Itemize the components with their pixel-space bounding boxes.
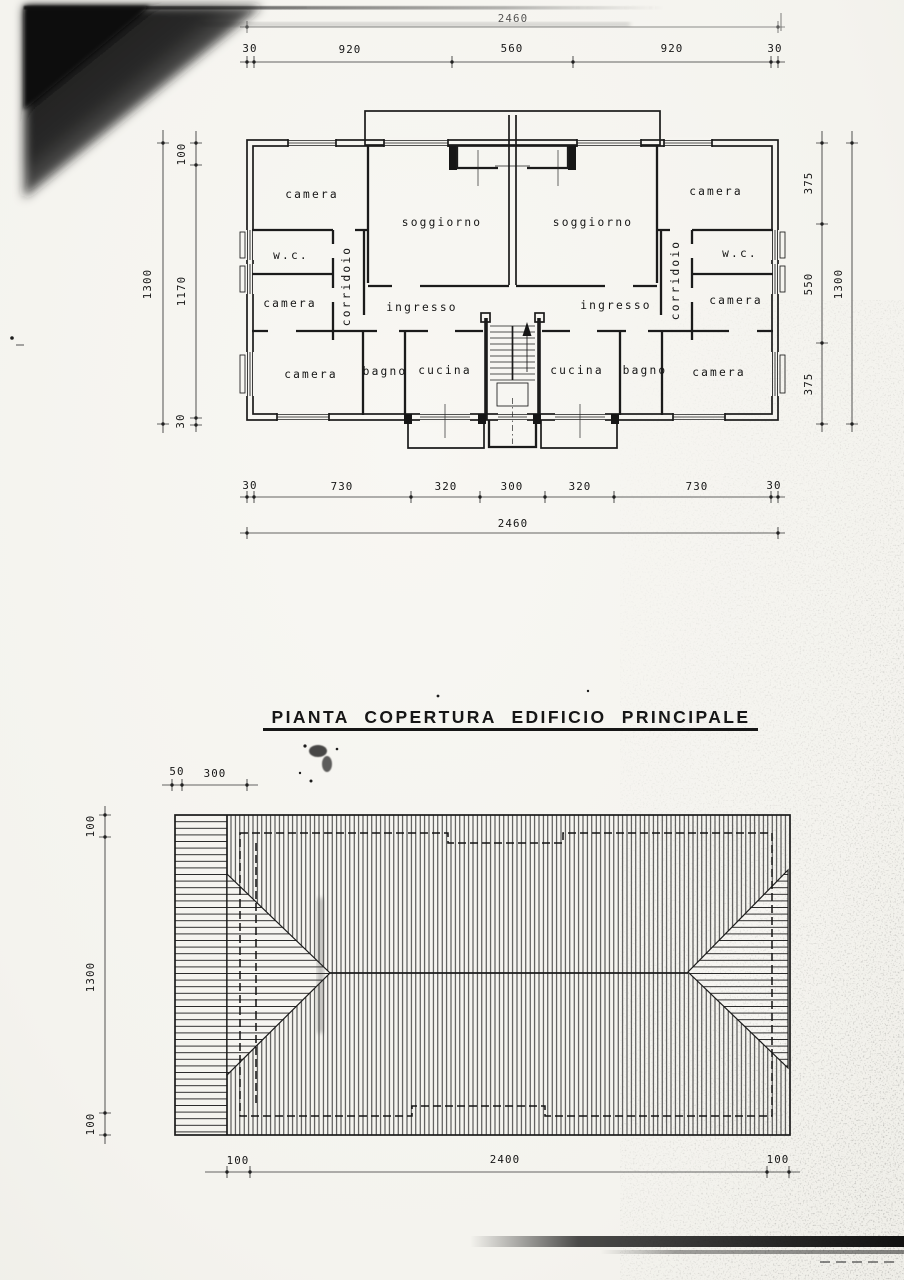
dim-bottom-total: 2460 [498, 517, 528, 530]
bottom-dark-band [470, 1236, 904, 1247]
dim-top-4: 30 [767, 42, 782, 55]
roof-dim-top-0: 50 [169, 765, 184, 778]
scanned-drawing-page: camera soggiorno soggiorno camera w.c. w… [0, 0, 904, 1280]
room-label-camera-top-left: camera [285, 188, 339, 201]
bottom-dark-band-2 [600, 1250, 904, 1254]
roof-dim-bottom-1: 2400 [490, 1153, 520, 1166]
dim-bottom-4: 320 [569, 480, 592, 493]
roof-dimensions-top: 50 300 [162, 765, 258, 791]
roof-dimensions-left: 100 1300 100 [84, 806, 111, 1144]
scan-streak [317, 898, 324, 1033]
room-label-wc-right: w.c. [722, 247, 758, 260]
dimensions-left: 1300 100 1170 30 [141, 130, 202, 433]
roof-left-strip-hatch [175, 815, 227, 1135]
room-label-camera-top-right: camera [689, 185, 743, 198]
bottom-right-noise [620, 300, 904, 1280]
room-label-cucina-right: cucina [550, 364, 604, 377]
room-label-cucina-left: cucina [418, 364, 472, 377]
room-label-bagno-left: bagno [363, 365, 408, 378]
dim-right-inner-1: 550 [802, 273, 815, 296]
dim-left-outer: 1300 [141, 269, 154, 299]
dim-bottom-0: 30 [242, 479, 257, 492]
dim-right-outer: 1300 [832, 269, 845, 299]
bottom-balconies [404, 398, 619, 448]
dim-bottom-2: 320 [435, 480, 458, 493]
dim-top-0: 30 [242, 42, 257, 55]
room-label-ingresso-left: ingresso [386, 301, 457, 314]
dim-left-inner-0: 100 [175, 143, 188, 166]
roof-dim-left-2: 100 [84, 1113, 97, 1136]
roof-dim-top-1: 300 [204, 767, 227, 780]
dim-bottom-1: 730 [331, 480, 354, 493]
dim-top-3: 920 [661, 42, 684, 55]
dim-left-inner-2: 30 [174, 413, 187, 428]
dim-left-inner-1: 1170 [175, 276, 188, 306]
dim-right-inner-0: 375 [802, 172, 815, 195]
dim-top-2: 560 [501, 42, 524, 55]
room-label-camera-bottom-left: camera [284, 368, 338, 381]
top-dim-smudge [200, 22, 630, 27]
room-label-camera-mid-left: camera [263, 297, 317, 310]
architectural-drawing: camera soggiorno soggiorno camera w.c. w… [0, 0, 904, 1280]
stair-up-arrow [523, 322, 532, 336]
room-label-corridoio-left: corridoio [340, 246, 353, 326]
room-label-wc-left: w.c. [273, 249, 309, 262]
roof-dim-left-0: 100 [84, 815, 97, 838]
dim-bottom-3: 300 [501, 480, 524, 493]
roof-dim-left-1: 1300 [84, 962, 97, 992]
room-label-soggiorno-left: soggiorno [402, 216, 482, 229]
roof-dim-bottom-0: 100 [227, 1154, 250, 1167]
dimensions-top: 2460 30 920 560 920 30 [240, 12, 785, 68]
room-label-soggiorno-right: soggiorno [553, 216, 633, 229]
dim-top-1: 920 [339, 43, 362, 56]
